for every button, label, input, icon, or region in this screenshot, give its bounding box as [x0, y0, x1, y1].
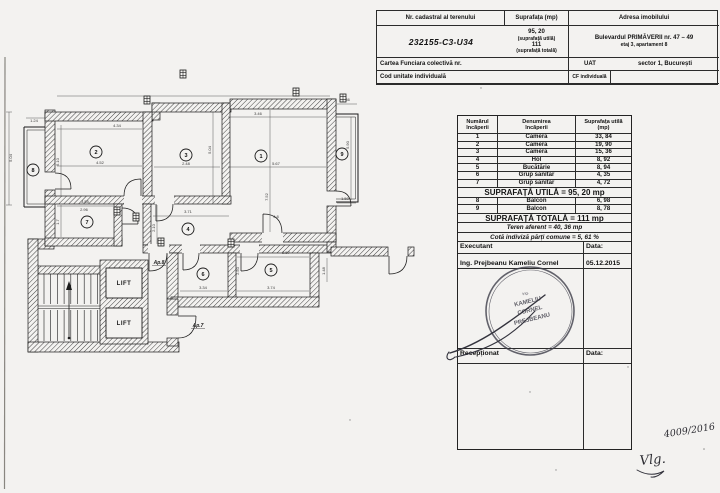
dimension-label: 2.48 [182, 161, 191, 166]
table-row: 7Grup sanitar4, 72 [458, 180, 631, 188]
staircase-treads [44, 274, 98, 341]
suprafata-totala-row: SUPRAFAȚĂ TOTALĂ = 111 mp [458, 213, 631, 224]
room-number-circles: 123456789 [27, 146, 348, 280]
svg-text:8: 8 [31, 168, 34, 174]
room-number-9: 9 [336, 148, 348, 160]
dimension-label: 4.52 [96, 160, 105, 165]
rooms-table-header: Numărul încăperii Denumirea încăperii Su… [458, 116, 631, 134]
suprafata-totala-note: (suprafață totală) [516, 48, 557, 54]
dimension-label: 3.55 [81, 199, 90, 204]
room-number-4: 4 [182, 223, 194, 235]
dimension-label: 1.48 [321, 266, 326, 275]
dimension-labels: 4.344.525.102.485.043.465.677.524.82.861… [8, 97, 351, 290]
apartment-door-labels: Ap.8Ap.7 [152, 260, 205, 329]
vent-symbol [180, 70, 186, 78]
lift-cabin-1 [106, 268, 142, 298]
handwritten-number: 4009/2016 [662, 421, 716, 440]
dimension-label: 5.04 [207, 145, 212, 154]
suprafata-utila-total-row: SUPRAFAȚĂ UTILĂ = 95, 20 mp [458, 187, 631, 198]
suprafata-label: Suprafața (mp) [505, 11, 569, 26]
col-header-suprafata: Suprafața utilă (mp) [576, 116, 631, 133]
executant-header-row: Executant Data: [458, 242, 631, 254]
staircase-divider [38, 306, 100, 309]
lift-label-1: LIFT [117, 281, 132, 287]
cota-indiviza-row: Cotă indiviză părți comune = 5, 61 % [458, 233, 631, 243]
door-arcs [55, 173, 407, 338]
vent-symbol [293, 88, 299, 96]
svg-text:7: 7 [85, 220, 88, 226]
nr-cadastral-label: Nr. cadastral al terenului [377, 11, 505, 26]
svg-text:6: 6 [201, 272, 204, 278]
dimension-label: 4.34 [113, 123, 122, 128]
empty-bottom-row [458, 364, 631, 449]
cf-value-empty [611, 71, 719, 84]
dimension-label: 3.71 [184, 209, 193, 214]
dimension-label: 2.96 [80, 207, 89, 212]
svg-text:3: 3 [184, 153, 187, 159]
svg-text:9: 9 [340, 152, 343, 158]
room-number-8: 8 [27, 164, 39, 176]
floor-plan: LIFT LIFT 4.344.525.102.485.043.465.677.… [6, 70, 414, 352]
dimension-label: 3.34 [199, 285, 208, 290]
vent-symbol [228, 239, 234, 247]
adresa-value: Bulevardul PRIMĂVERII nr. 47 – 49 etaj 3… [569, 26, 719, 58]
balcony-9-outline [336, 114, 358, 202]
uat-label: UAT [569, 58, 611, 71]
cod-unitate-label: Cod unitate individuală [377, 71, 569, 84]
balcony-8-outline [24, 127, 45, 207]
executant-data-label: Data: [584, 242, 631, 253]
table-row: 2Cameră19, 90 [458, 142, 631, 150]
col-header-numarul: Numărul încăperii [458, 116, 498, 133]
executant-name-row: Ing. Prejbeanu Kameliu Cornel 05.12.2015 [458, 254, 631, 269]
cf-label: CF individuală [569, 71, 611, 84]
table-row: 1Cameră33, 84 [458, 134, 631, 142]
stamp-row [458, 269, 631, 349]
dimension-label: 2.10 [151, 223, 156, 232]
balcony-rows: 8Balcon6, 989Balcon8, 78 [458, 198, 631, 213]
nr-cadastral-value: 232155-C3-U34 [377, 26, 505, 58]
dimension-label: 5.04 [8, 153, 13, 162]
room-number-7: 7 [81, 216, 93, 228]
rooms-table-rows: 1Cameră33, 842Cameră19, 903Cameră15, 364… [458, 134, 631, 187]
table-row: 8Balcon6, 98 [458, 198, 631, 206]
dimension-label: 3.46 [254, 111, 263, 116]
executant-date: 05.12.2015 [584, 254, 631, 268]
dimension-label: 4.8 [273, 214, 279, 219]
suprafata-values: 95, 20 (suprafață utilă) 111 (suprafață … [505, 26, 569, 58]
handwritten-signature: Vlg. [639, 452, 666, 469]
dimension-label: 5.67 [272, 161, 281, 166]
signature-flourish [637, 470, 664, 477]
dimension-lines [6, 96, 357, 291]
receptionat-row: Recepționat Data: [458, 349, 631, 364]
table-row: 3Cameră15, 36 [458, 149, 631, 157]
col-header-denumirea: Denumirea încăperii [498, 116, 576, 133]
table-row: 6Grup sanitar4, 35 [458, 172, 631, 180]
lift-cabin-2 [106, 308, 142, 338]
lift-label-2: LIFT [117, 321, 132, 327]
handwritten-annotations: 4009/2016 Vlg. [637, 421, 716, 477]
room-number-1: 1 [255, 150, 267, 162]
dimension-label: 7.52 [264, 192, 269, 201]
dimension-label: 1.7 [55, 218, 60, 224]
table-row: 4Hol8, 92 [458, 157, 631, 165]
svg-text:1: 1 [259, 154, 262, 160]
dimension-label: 3.74 [267, 285, 276, 290]
dimension-label: 2.86 [342, 97, 351, 102]
vent-symbol [114, 207, 120, 215]
stamp-cell [458, 269, 584, 348]
room-number-5: 5 [265, 264, 277, 276]
dimension-label: 1.50 [341, 196, 350, 201]
uat-value: sector 1, București [611, 58, 719, 71]
vent-symbol [133, 213, 139, 221]
table-row: 5Bucătărie8, 94 [458, 164, 631, 172]
svg-text:5: 5 [269, 268, 272, 274]
adresa-line2: etaj 3, apartament 8 [621, 42, 668, 48]
executant-label: Executant [458, 242, 584, 253]
carte-funciara-label: Cartea Funciara colectivă nr. [377, 58, 569, 71]
door-label: Ap.7 [192, 323, 204, 329]
dimension-label: 2.57 [282, 250, 291, 255]
vent-symbol [340, 94, 346, 102]
receptionat-label: Recepționat [458, 349, 584, 363]
dimension-label: 5.10 [55, 157, 60, 166]
room-number-3: 3 [180, 149, 192, 161]
adresa-label: Adresa imobilului [569, 11, 719, 26]
svg-text:2: 2 [94, 150, 97, 156]
executant-name: Ing. Prejbeanu Kameliu Cornel [458, 254, 584, 268]
dimension-label: 2.50 [235, 266, 240, 275]
dimension-label: 1.24 [30, 118, 39, 123]
svg-text:4: 4 [186, 227, 190, 233]
rooms-area-table: Numărul încăperii Denumirea încăperii Su… [457, 115, 632, 450]
room-number-6: 6 [197, 268, 209, 280]
table-row: 9Balcon8, 78 [458, 205, 631, 213]
vent-symbols [114, 70, 346, 247]
vent-symbol [144, 96, 150, 104]
teren-aferent-row: Teren aferent = 40, 36 mp [458, 223, 631, 233]
vent-symbol [158, 238, 164, 246]
wall-openings [124, 195, 283, 254]
door-label: Ap.8 [153, 260, 165, 266]
dimension-label: 5.90 [345, 140, 350, 149]
room-number-2: 2 [90, 146, 102, 158]
header-info-table: Nr. cadastral al terenului Suprafața (mp… [376, 10, 718, 85]
receptionat-data-label: Data: [584, 349, 631, 363]
walls [28, 99, 414, 352]
